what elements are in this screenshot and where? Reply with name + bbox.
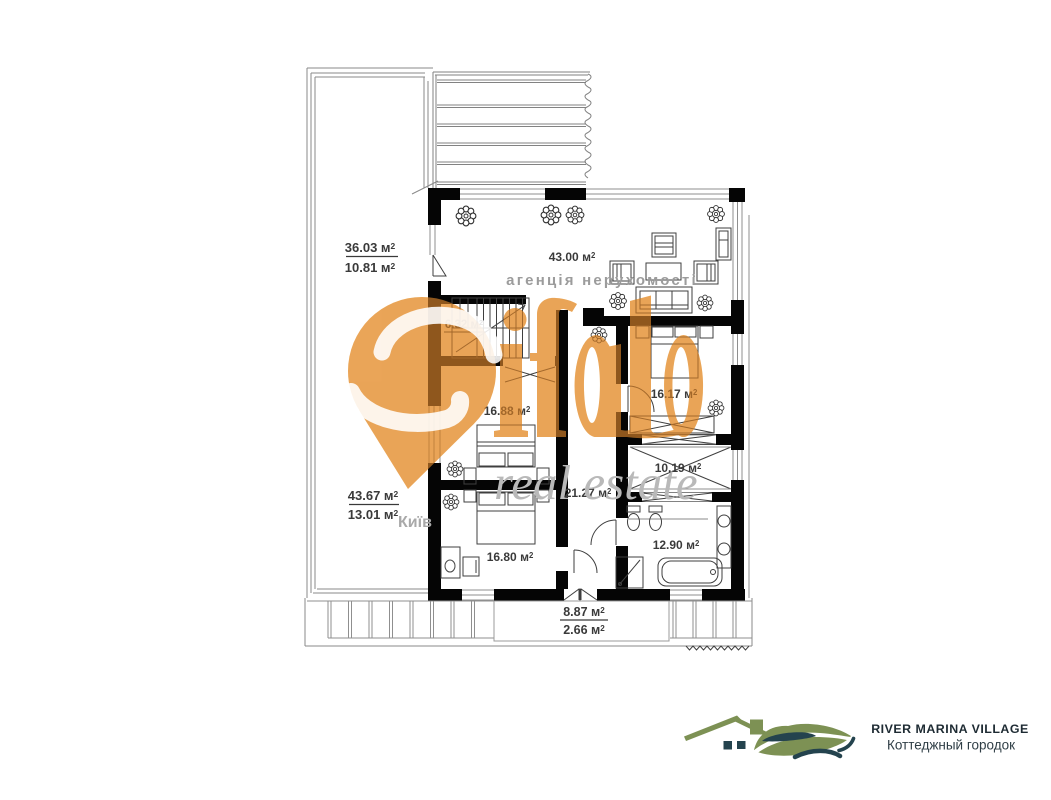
- svg-text:RIVER MARINA VILLAGE: RIVER MARINA VILLAGE: [871, 722, 1029, 736]
- svg-text:Київ: Київ: [398, 514, 432, 531]
- svg-text:36.03 м2: 36.03 м2: [345, 240, 396, 255]
- svg-text:Коттеджный городок: Коттеджный городок: [887, 738, 1015, 753]
- svg-text:8.87 м2: 8.87 м2: [563, 605, 605, 619]
- svg-text:13.01 м2: 13.01 м2: [348, 507, 399, 522]
- svg-text:real estate: real estate: [494, 455, 698, 510]
- svg-text:10.81 м2: 10.81 м2: [345, 260, 396, 275]
- svg-text:2.66 м2: 2.66 м2: [563, 623, 605, 637]
- svg-text:12.90 м2: 12.90 м2: [653, 538, 700, 552]
- svg-text:43.00 м2: 43.00 м2: [549, 250, 596, 264]
- svg-text:агенція нерухомості: агенція нерухомості: [506, 272, 698, 289]
- svg-text:43.67 м2: 43.67 м2: [348, 488, 399, 503]
- svg-text:16.80 м2: 16.80 м2: [487, 550, 534, 564]
